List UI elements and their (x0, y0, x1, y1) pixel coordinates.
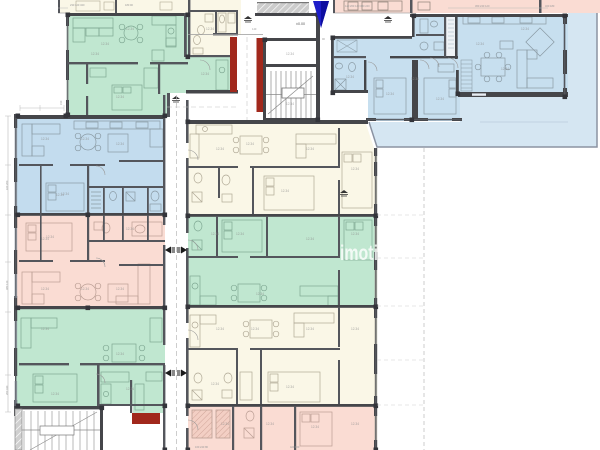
svg-text:12.34: 12.34 (411, 77, 419, 81)
svg-text:420 260: 420 260 (5, 180, 9, 190)
svg-text:12.34: 12.34 (91, 52, 99, 56)
svg-text:12.34: 12.34 (206, 27, 214, 31)
svg-text:12.34: 12.34 (501, 67, 509, 71)
svg-text:12.34: 12.34 (281, 189, 289, 193)
svg-text:380 120: 380 120 (5, 280, 9, 290)
svg-text:12.34: 12.34 (61, 192, 69, 196)
svg-text:12.34: 12.34 (201, 72, 209, 76)
svg-text:12.34: 12.34 (351, 327, 359, 331)
svg-text:12.34: 12.34 (351, 232, 359, 236)
svg-text:12.34: 12.34 (286, 102, 294, 106)
svg-text:12.34: 12.34 (211, 382, 219, 386)
svg-text:12.34: 12.34 (101, 42, 109, 46)
svg-text:180 90: 180 90 (125, 3, 133, 7)
svg-text:12.34: 12.34 (51, 392, 59, 396)
svg-text:140: 140 (252, 27, 257, 31)
svg-text:±0.00: ±0.00 (296, 22, 305, 26)
svg-text:12.34: 12.34 (41, 327, 49, 331)
svg-text:360 240 120: 360 240 120 (475, 4, 490, 8)
svg-text:12.34: 12.34 (126, 387, 134, 391)
svg-text:12.34: 12.34 (266, 422, 274, 426)
svg-text:12.34: 12.34 (116, 352, 124, 356)
svg-text:12.34: 12.34 (306, 237, 314, 241)
svg-text:12.34: 12.34 (521, 27, 529, 31)
svg-text:12.34: 12.34 (236, 232, 244, 236)
svg-text:12.34: 12.34 (216, 147, 224, 151)
svg-text:230 120 340: 230 120 340 (70, 3, 85, 7)
svg-text:420 160: 420 160 (290, 445, 300, 449)
svg-text:12.34: 12.34 (306, 327, 314, 331)
svg-text:12.34: 12.34 (126, 27, 134, 31)
svg-text:imoti: imoti (340, 242, 378, 265)
svg-text:310: 310 (59, 100, 63, 105)
svg-text:12.34: 12.34 (221, 422, 229, 426)
svg-text:12.34: 12.34 (436, 97, 444, 101)
svg-text:12.34: 12.34 (116, 142, 124, 146)
svg-text:12.34: 12.34 (306, 147, 314, 151)
svg-text:12.34: 12.34 (216, 327, 224, 331)
svg-text:12.34: 12.34 (126, 227, 134, 231)
svg-text:12.34: 12.34 (41, 137, 49, 141)
svg-text:12.34: 12.34 (286, 385, 294, 389)
svg-text:160 240 80: 160 240 80 (195, 445, 209, 449)
svg-text:12.34: 12.34 (41, 237, 49, 241)
svg-text:120 260 140 380 240: 120 260 140 380 240 (345, 4, 370, 8)
svg-text:260 340: 260 340 (5, 385, 9, 395)
svg-text:12.34: 12.34 (246, 142, 254, 146)
svg-text:12.34: 12.34 (286, 52, 294, 56)
svg-text:12.34: 12.34 (251, 327, 259, 331)
svg-text:12.34: 12.34 (386, 92, 394, 96)
svg-text:12.34: 12.34 (476, 42, 484, 46)
svg-text:320 180: 320 180 (545, 4, 555, 8)
svg-text:12.34: 12.34 (81, 287, 89, 291)
svg-text:12.34: 12.34 (116, 95, 124, 99)
svg-text:12.34: 12.34 (81, 137, 89, 141)
svg-text:12.34: 12.34 (256, 292, 264, 296)
svg-text:12.34: 12.34 (346, 75, 354, 79)
svg-text:12.34: 12.34 (351, 422, 359, 426)
svg-text:12.34: 12.34 (211, 232, 219, 236)
svg-text:12.34: 12.34 (311, 425, 319, 429)
svg-text:12.34: 12.34 (41, 287, 49, 291)
svg-text:12.34: 12.34 (351, 167, 359, 171)
svg-text:12.34: 12.34 (116, 287, 124, 291)
